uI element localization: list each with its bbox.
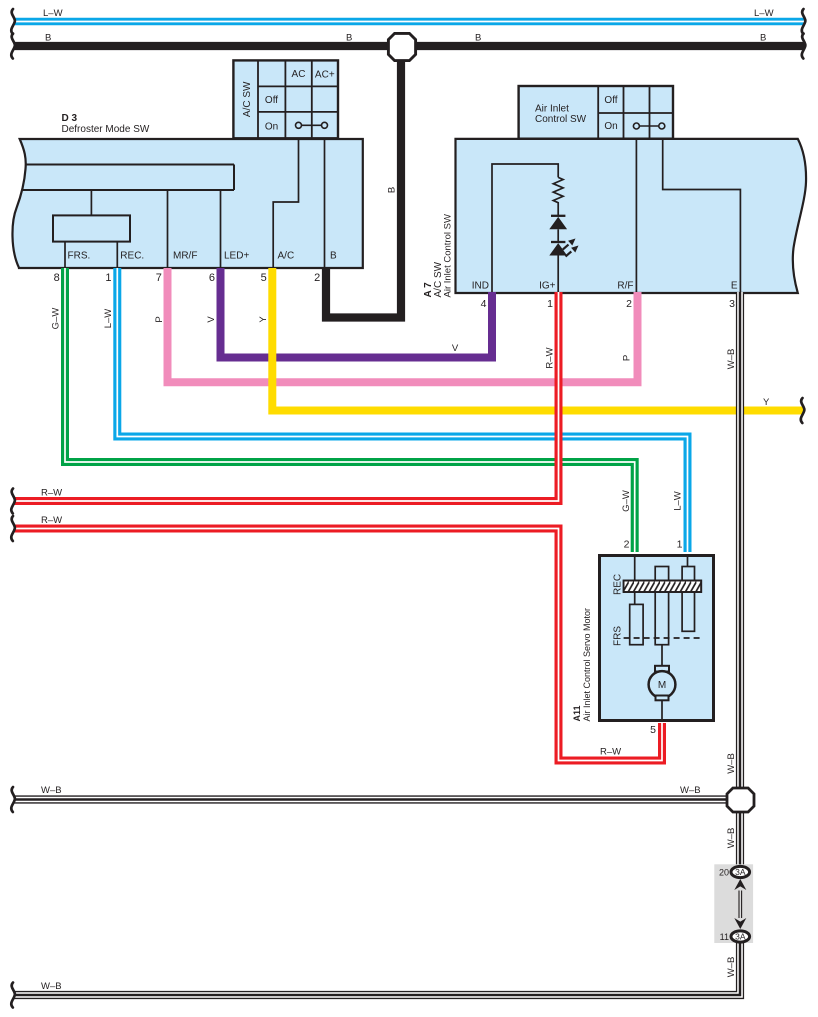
svg-text:W–B: W–B xyxy=(41,785,62,796)
svg-text:5: 5 xyxy=(650,724,656,736)
svg-text:7: 7 xyxy=(156,272,162,284)
svg-text:11: 11 xyxy=(720,932,729,942)
svg-text:Air Inlet: Air Inlet xyxy=(535,104,569,115)
svg-text:W–B: W–B xyxy=(680,785,701,796)
svg-text:AC: AC xyxy=(292,69,306,80)
svg-text:3A: 3A xyxy=(735,867,746,877)
svg-text:V: V xyxy=(452,343,459,354)
svg-text:L–W: L–W xyxy=(754,8,774,19)
svg-text:Off: Off xyxy=(265,95,278,106)
svg-text:G–W: G–W xyxy=(51,308,62,330)
svg-text:W–B: W–B xyxy=(726,828,737,849)
svg-text:Y: Y xyxy=(763,397,770,408)
svg-text:IG+: IG+ xyxy=(539,281,556,292)
svg-text:B: B xyxy=(760,33,766,44)
svg-text:R–W: R–W xyxy=(600,747,621,758)
svg-text:R–W: R–W xyxy=(41,488,62,499)
svg-text:A/C SW: A/C SW xyxy=(242,81,253,117)
svg-text:R–W: R–W xyxy=(545,347,556,368)
svg-text:D 3: D 3 xyxy=(62,113,78,124)
svg-text:REC.: REC. xyxy=(120,251,144,262)
svg-text:On: On xyxy=(265,121,278,132)
svg-text:G–W: G–W xyxy=(621,490,632,512)
svg-text:1: 1 xyxy=(677,539,683,551)
svg-text:LED+: LED+ xyxy=(224,251,249,262)
svg-text:1: 1 xyxy=(105,272,111,284)
svg-text:2: 2 xyxy=(314,272,320,284)
svg-text:20: 20 xyxy=(719,867,729,877)
svg-text:4: 4 xyxy=(481,298,487,310)
svg-text:L–W: L–W xyxy=(673,491,684,511)
svg-text:Y: Y xyxy=(258,316,269,323)
svg-text:2: 2 xyxy=(624,539,630,551)
svg-text:Off: Off xyxy=(604,95,617,106)
svg-text:W–B: W–B xyxy=(726,957,737,978)
svg-text:2: 2 xyxy=(626,298,632,310)
svg-text:P: P xyxy=(622,355,633,361)
svg-text:3: 3 xyxy=(729,298,735,310)
svg-text:V: V xyxy=(206,316,217,323)
svg-text:A11: A11 xyxy=(572,705,582,721)
svg-text:L–W: L–W xyxy=(103,309,114,329)
svg-text:A/C: A/C xyxy=(278,251,295,262)
svg-text:Defroster Mode SW: Defroster Mode SW xyxy=(62,124,150,135)
svg-text:E: E xyxy=(731,281,738,292)
svg-text:W–B: W–B xyxy=(41,981,62,992)
svg-text:8: 8 xyxy=(54,272,60,284)
svg-text:1: 1 xyxy=(547,298,553,310)
svg-text:3A: 3A xyxy=(735,932,746,942)
svg-text:FRS.: FRS. xyxy=(68,251,91,262)
svg-text:AC+: AC+ xyxy=(315,70,335,81)
svg-text:L–W: L–W xyxy=(43,8,63,19)
svg-text:Air Inlet Control SW: Air Inlet Control SW xyxy=(443,214,454,297)
svg-text:R–W: R–W xyxy=(41,515,62,526)
svg-text:B: B xyxy=(330,251,337,262)
svg-text:On: On xyxy=(604,121,617,132)
svg-text:Air Inlet Control Servo Motor: Air Inlet Control Servo Motor xyxy=(582,608,592,722)
svg-text:Control SW: Control SW xyxy=(535,114,587,125)
svg-text:B: B xyxy=(346,33,352,44)
svg-text:REC: REC xyxy=(613,574,624,595)
svg-text:MR/F: MR/F xyxy=(173,251,197,262)
svg-text:IND: IND xyxy=(472,281,489,292)
svg-text:W–B: W–B xyxy=(726,753,737,774)
svg-text:R/F: R/F xyxy=(617,281,633,292)
svg-text:M: M xyxy=(658,680,666,691)
svg-text:B: B xyxy=(475,33,481,44)
svg-text:B: B xyxy=(45,33,51,44)
svg-text:6: 6 xyxy=(209,272,215,284)
svg-text:W–B: W–B xyxy=(726,349,737,370)
svg-text:P: P xyxy=(154,316,165,322)
svg-text:5: 5 xyxy=(261,272,267,284)
svg-text:FRS: FRS xyxy=(613,626,624,646)
svg-text:B: B xyxy=(387,187,398,193)
